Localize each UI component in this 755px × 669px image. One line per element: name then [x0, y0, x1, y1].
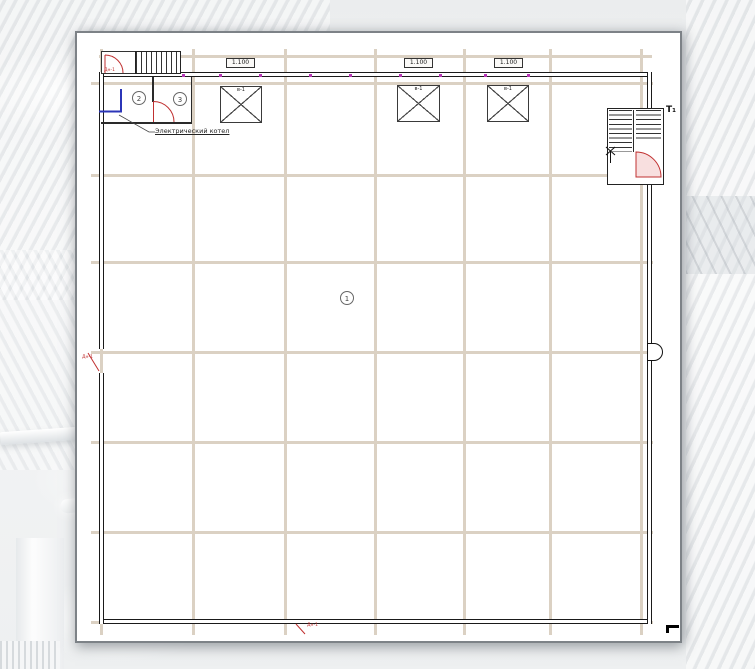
window-mark: 1.100	[226, 58, 255, 68]
stair-flight	[636, 110, 661, 140]
partition-wall	[152, 77, 154, 102]
exterior-wall-bottom	[99, 619, 652, 624]
grid-line	[284, 49, 287, 635]
boiler-label: Электрический котел	[155, 128, 229, 135]
partition-wall	[101, 122, 192, 124]
stair-section-mark: Т₁	[666, 106, 676, 115]
grid-line	[91, 261, 653, 264]
grid-line	[91, 531, 653, 534]
shaft-box: в-1	[487, 85, 529, 122]
room-number-circle: 2	[132, 91, 146, 105]
shaft-box: в-1	[220, 86, 262, 123]
shaft-label: в-1	[488, 87, 528, 92]
entrance-grating-hatch	[135, 51, 181, 74]
door-arc	[154, 102, 175, 123]
leader-line	[119, 115, 155, 132]
partition-wall	[191, 77, 193, 123]
window-mark: 1.100	[404, 58, 433, 68]
corner-marker	[666, 625, 679, 633]
plan-symbols-overlay	[77, 33, 680, 641]
shaft-box: в-1	[397, 85, 440, 122]
room-number-circle: 1	[340, 291, 354, 305]
grid-line	[549, 49, 552, 635]
fixture-dot	[182, 74, 185, 77]
grid-line	[91, 441, 653, 444]
fixture-dot	[309, 74, 312, 77]
roof-truss-right	[686, 196, 755, 274]
radiator	[0, 641, 60, 669]
grid-line	[374, 49, 377, 635]
stair-flight	[609, 110, 632, 152]
shaft-label: в-1	[398, 87, 439, 92]
grid-line	[463, 49, 466, 635]
ceiling-deck-stripes-right	[686, 0, 755, 669]
door-tag: Дн-1	[82, 355, 93, 360]
fixture-dot	[527, 74, 530, 77]
fixture-dot	[399, 74, 402, 77]
stair-divider	[633, 110, 635, 152]
fixture-dot	[219, 74, 222, 77]
grid-line	[91, 351, 657, 354]
door-leaf	[296, 624, 305, 634]
grid-line	[91, 82, 653, 85]
fixture-dot	[349, 74, 352, 77]
exterior-wall-left	[99, 373, 104, 624]
fixture-dot	[484, 74, 487, 77]
fixture-dot	[259, 74, 262, 77]
floor-plan-sheet: в-1 в-1 в-1 1.100 1.100 1.100 1 2 3 Т₁ Д…	[75, 31, 682, 643]
window-mark: 1.100	[494, 58, 523, 68]
grid-line	[99, 55, 652, 58]
grid-line	[91, 174, 653, 177]
shaft-label: в-1	[221, 88, 261, 93]
grid-line	[192, 49, 195, 635]
room-number-circle: 3	[173, 92, 187, 106]
door-tag: Дн-1	[104, 68, 115, 73]
door-tag: Дн-1	[307, 623, 318, 628]
wall-knob-symbol	[647, 343, 663, 361]
exterior-wall-left	[99, 72, 104, 349]
fixture-dot	[439, 74, 442, 77]
